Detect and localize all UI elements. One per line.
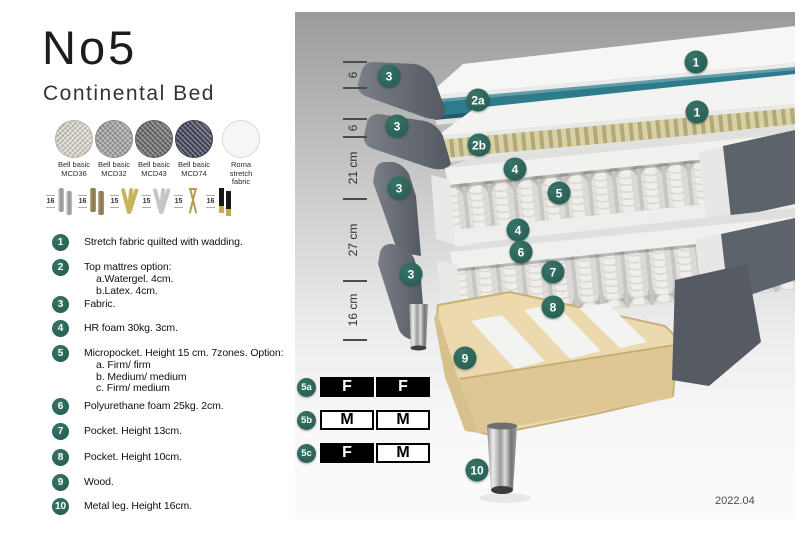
fabric-swatch: Bell basicMCD74 xyxy=(174,120,214,187)
feature-number-badge: 1 xyxy=(52,234,69,251)
box-side-panel xyxy=(672,264,761,386)
feature-item: 1 Stretch fabric quilted with wadding. xyxy=(52,234,243,251)
leg-hairpin-icon xyxy=(185,186,202,216)
firmness-cell: M xyxy=(376,443,430,463)
feature-number-badge: 7 xyxy=(52,423,69,440)
firmness-table: F F xyxy=(320,377,430,397)
firmness-cell: M xyxy=(376,410,430,430)
feature-number-badge: 4 xyxy=(52,320,69,337)
leg-option: 15 xyxy=(142,186,174,216)
leg-chrome-cylinder-icon xyxy=(57,186,74,216)
fabric-swatch-label: Romastretch fabric xyxy=(221,161,261,187)
feature-number-badge: 9 xyxy=(52,474,69,491)
fabric-swatch-circle xyxy=(175,120,213,158)
product-sheet: No5 Continental Bed Bell basicMCD36 Bell… xyxy=(0,0,800,533)
fabric-swatch: Bell basicMCD43 xyxy=(134,120,174,187)
diagram-badge: 7 xyxy=(542,261,565,284)
firmness-badge: 5a xyxy=(297,378,316,397)
diagram-badge: 1 xyxy=(686,101,709,124)
feature-item: 6 Polyurethane foam 25kg. 2cm. xyxy=(52,398,224,415)
page-subtitle: Continental Bed xyxy=(43,82,215,106)
scale-label: 27 cm xyxy=(346,224,360,257)
scale-tick xyxy=(343,198,367,200)
scale-label: 6 xyxy=(346,72,360,79)
leg-height-label: 16 xyxy=(207,196,215,207)
diagram-badge: 2a xyxy=(467,89,490,112)
fabric-swatch-circle xyxy=(135,120,173,158)
feature-number-badge: 5 xyxy=(52,345,69,362)
fabric-swatch-circle xyxy=(95,120,133,158)
feature-subtext: c. Firm/ medium xyxy=(96,383,283,395)
scale-tick xyxy=(343,118,367,120)
firmness-cell: M xyxy=(320,410,374,430)
fabric-swatch: Romastretch fabric xyxy=(221,120,261,187)
scale-tick xyxy=(343,136,367,138)
firmness-cell: F xyxy=(320,377,374,397)
feature-number-badge: 3 xyxy=(52,296,69,313)
feature-item: 8 Pocket. Height 10cm. xyxy=(52,449,182,466)
fabric-swatch: Bell basicMCD32 xyxy=(94,120,134,187)
leg-height-label: 15 xyxy=(175,196,183,207)
feature-text: Pocket. Height 13cm. xyxy=(84,426,182,438)
feature-text: Polyurethane foam 25kg. 2cm. xyxy=(84,401,224,413)
feature-item: 5 Micropocket. Height 15 cm. 7zones. Opt… xyxy=(52,345,283,395)
page-title: No5 xyxy=(42,24,137,71)
diagram-badge: 9 xyxy=(454,347,477,370)
leg-height-label: 15 xyxy=(111,196,119,207)
feature-text: Pocket. Height 10cm. xyxy=(84,452,182,464)
feature-subtext: a. Firm/ firm xyxy=(96,360,283,372)
scale-label: 21 cm xyxy=(346,152,360,185)
feature-text: Stretch fabric quilted with wadding. xyxy=(84,237,243,249)
diagram-badge: 3 xyxy=(378,65,401,88)
feature-item: 3 Fabric. xyxy=(52,296,115,313)
leg-height-label: 15 xyxy=(143,196,151,207)
scale-tick xyxy=(343,87,367,89)
feature-item: 2 Top mattres option: a.Watergel. 4cm. b… xyxy=(52,259,173,297)
leg-height-label: 16 xyxy=(47,196,55,207)
bed-diagram-panel: 6 6 21 cm 27 cm 16 cm 3 2a 1 3 2b 1 4 5 … xyxy=(295,12,795,520)
feature-text: Fabric. xyxy=(84,299,115,311)
feature-text: HR foam 30kg. 3cm. xyxy=(84,323,178,335)
version-label: 2022.04 xyxy=(715,495,755,507)
feature-item: 9 Wood. xyxy=(52,474,114,491)
feature-text: Wood. xyxy=(84,477,114,489)
feature-subtext: a.Watergel. 4cm. xyxy=(96,274,173,286)
scale-label: 6 xyxy=(346,125,360,132)
feature-number-badge: 10 xyxy=(52,498,69,515)
diagram-badge: 4 xyxy=(504,158,527,181)
leg-option: 16 xyxy=(78,186,110,216)
diagram-badge: 5 xyxy=(548,182,571,205)
diagram-badge: 3 xyxy=(400,263,423,286)
diagram-badge: 4 xyxy=(507,219,530,242)
firmness-badge: 5c xyxy=(297,444,316,463)
leg-options-row: 16 16 15 15 15 16 xyxy=(46,186,238,216)
leg-gold-twist-icon xyxy=(121,186,138,216)
diagram-badge: 6 xyxy=(510,241,533,264)
firmness-cell: F xyxy=(320,443,374,463)
firmness-badge: 5b xyxy=(297,411,316,430)
leg-option: 15 xyxy=(110,186,142,216)
fabric-swatch-row: Bell basicMCD36 Bell basicMCD32 Bell bas… xyxy=(54,120,261,187)
firmness-row-5b: 5b M M xyxy=(297,410,430,430)
fabric-swatch-circle xyxy=(222,120,260,158)
scale-tick xyxy=(343,339,367,341)
feature-text: Metal leg. Height 16cm. xyxy=(84,501,192,513)
feature-number-badge: 8 xyxy=(52,449,69,466)
diagram-badge: 1 xyxy=(685,51,708,74)
feature-item: 10 Metal leg. Height 16cm. xyxy=(52,498,192,515)
feature-number-badge: 2 xyxy=(52,259,69,276)
feature-item: 7 Pocket. Height 13cm. xyxy=(52,423,182,440)
leg-option: 16 xyxy=(206,186,238,216)
feature-number-badge: 6 xyxy=(52,398,69,415)
fabric-swatch-label: Bell basicMCD32 xyxy=(98,161,130,178)
fabric-swatch: Bell basicMCD36 xyxy=(54,120,94,187)
firmness-table: F M xyxy=(320,443,430,463)
leg-silver-twist-icon xyxy=(153,186,170,216)
scale-tick xyxy=(343,61,367,63)
diagram-badge: 10 xyxy=(466,459,489,482)
leg-wood-cylinder-icon xyxy=(89,186,106,216)
fabric-swatch-label: Bell basicMCD74 xyxy=(178,161,210,178)
leg-option: 15 xyxy=(174,186,206,216)
firmness-row-5a: 5a F F xyxy=(297,377,430,397)
scale-label: 16 cm xyxy=(346,294,360,327)
leg-black-gold-icon xyxy=(217,186,234,216)
fabric-swatch-circle xyxy=(55,120,93,158)
firmness-cell: F xyxy=(376,377,430,397)
fabric-swatch-label: Bell basicMCD43 xyxy=(138,161,170,178)
diagram-badge: 2b xyxy=(468,134,491,157)
diagram-badge: 8 xyxy=(542,296,565,319)
leg-option: 16 xyxy=(46,186,78,216)
firmness-row-5c: 5c F M xyxy=(297,443,430,463)
leg-height-label: 16 xyxy=(79,196,87,207)
diagram-badge: 3 xyxy=(386,115,409,138)
scale-tick xyxy=(343,280,367,282)
firmness-table: M M xyxy=(320,410,430,430)
feature-item: 4 HR foam 30kg. 3cm. xyxy=(52,320,178,337)
diagram-badge: 3 xyxy=(388,177,411,200)
fabric-swatch-label: Bell basicMCD36 xyxy=(58,161,90,178)
